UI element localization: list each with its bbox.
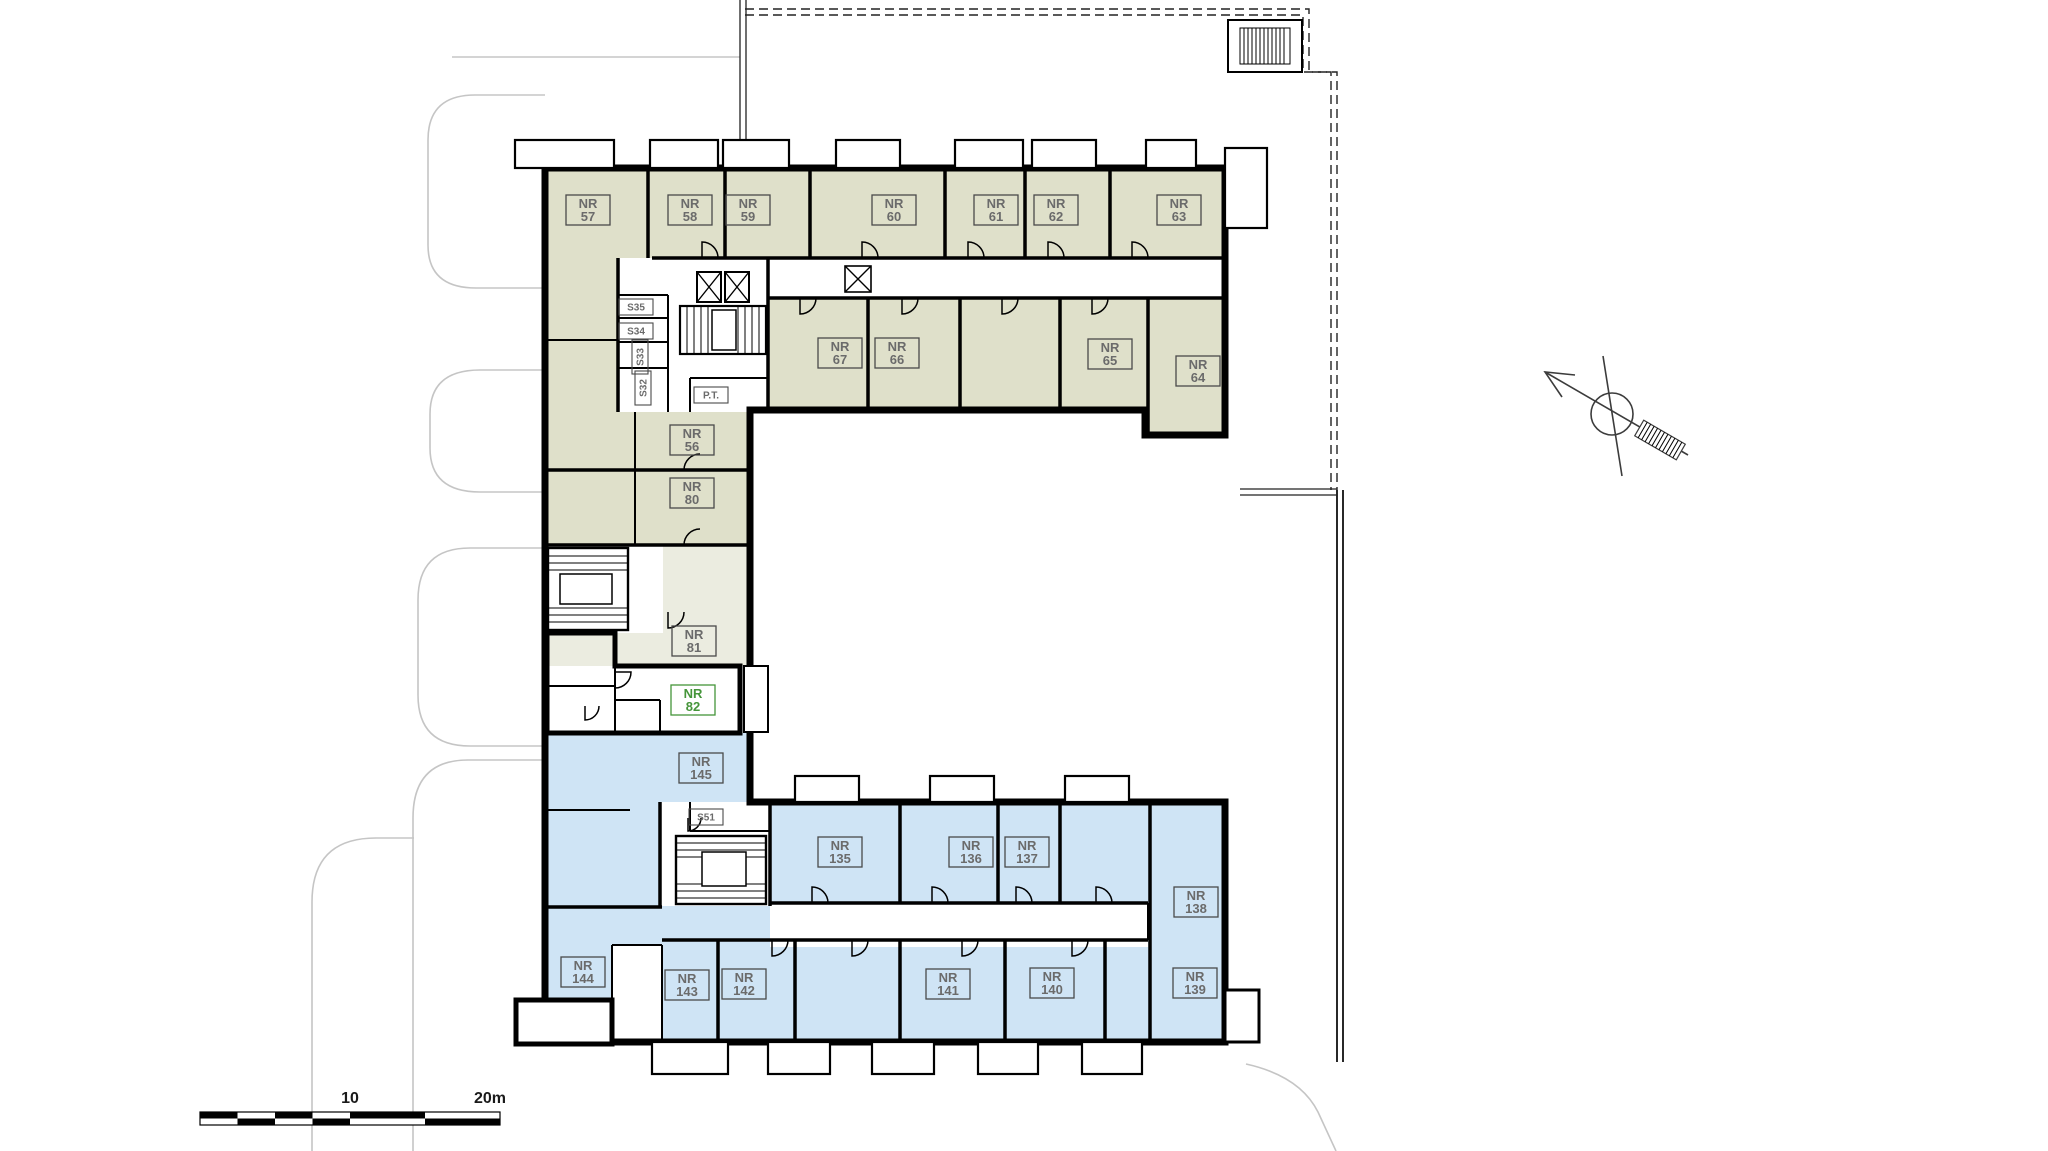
- svg-text:66: 66: [890, 352, 904, 367]
- scale-label-mid: 10: [341, 1090, 359, 1107]
- svg-text:139: 139: [1184, 982, 1206, 997]
- svg-text:142: 142: [733, 983, 755, 998]
- svg-text:140: 140: [1041, 982, 1063, 997]
- stair-top-core: [680, 306, 766, 354]
- terrace-southeast: [1225, 990, 1259, 1042]
- stair-mid-core: [548, 548, 628, 630]
- apartment-nr-82-partitions: [547, 666, 660, 733]
- svg-text:56: 56: [685, 439, 699, 454]
- north-arrow: [1545, 356, 1688, 476]
- svg-text:S51: S51: [697, 813, 715, 824]
- north-arrow-hatch: [1635, 420, 1686, 460]
- unit-label-nr-82: NR82: [671, 685, 715, 715]
- svg-text:143: 143: [676, 984, 698, 999]
- svg-text:P.T.: P.T.: [703, 391, 719, 402]
- svg-text:61: 61: [989, 209, 1003, 224]
- svg-text:S35: S35: [627, 303, 645, 314]
- svg-text:141: 141: [937, 983, 959, 998]
- scale-label-end: 20m: [474, 1090, 506, 1107]
- svg-text:S34: S34: [627, 327, 645, 338]
- scale-bar: 10 20m: [200, 1090, 506, 1125]
- svg-text:135: 135: [829, 851, 851, 866]
- svg-text:81: 81: [687, 640, 701, 655]
- svg-text:65: 65: [1103, 353, 1117, 368]
- svg-text:59: 59: [741, 209, 755, 224]
- svg-text:145: 145: [690, 767, 712, 782]
- svg-text:S33: S33: [636, 348, 647, 366]
- svg-text:137: 137: [1016, 851, 1038, 866]
- svg-text:58: 58: [683, 209, 697, 224]
- scale-bar-segments: [200, 1112, 500, 1125]
- fence-line: [1240, 489, 1343, 1062]
- svg-text:57: 57: [581, 209, 595, 224]
- svg-text:62: 62: [1049, 209, 1063, 224]
- svg-text:67: 67: [833, 352, 847, 367]
- svg-text:S32: S32: [639, 379, 650, 397]
- floor-plan-canvas: NR57NR58NR59NR60NR61NR62NR63NR67NR66NR65…: [0, 0, 2048, 1151]
- svg-text:64: 64: [1191, 370, 1206, 385]
- svg-text:63: 63: [1172, 209, 1186, 224]
- walkway-edge-line: [740, 0, 746, 140]
- svg-text:82: 82: [686, 699, 700, 714]
- svg-text:60: 60: [887, 209, 901, 224]
- svg-text:138: 138: [1185, 901, 1207, 916]
- stair-bottom-core: [676, 836, 766, 904]
- floor-plan: NR57NR58NR59NR60NR61NR62NR63NR67NR66NR65…: [0, 0, 2048, 1151]
- vent-structure: [1228, 20, 1302, 72]
- svg-text:144: 144: [572, 971, 594, 986]
- svg-text:80: 80: [685, 492, 699, 507]
- svg-text:136: 136: [960, 851, 982, 866]
- terrace-southwest: [516, 1000, 612, 1044]
